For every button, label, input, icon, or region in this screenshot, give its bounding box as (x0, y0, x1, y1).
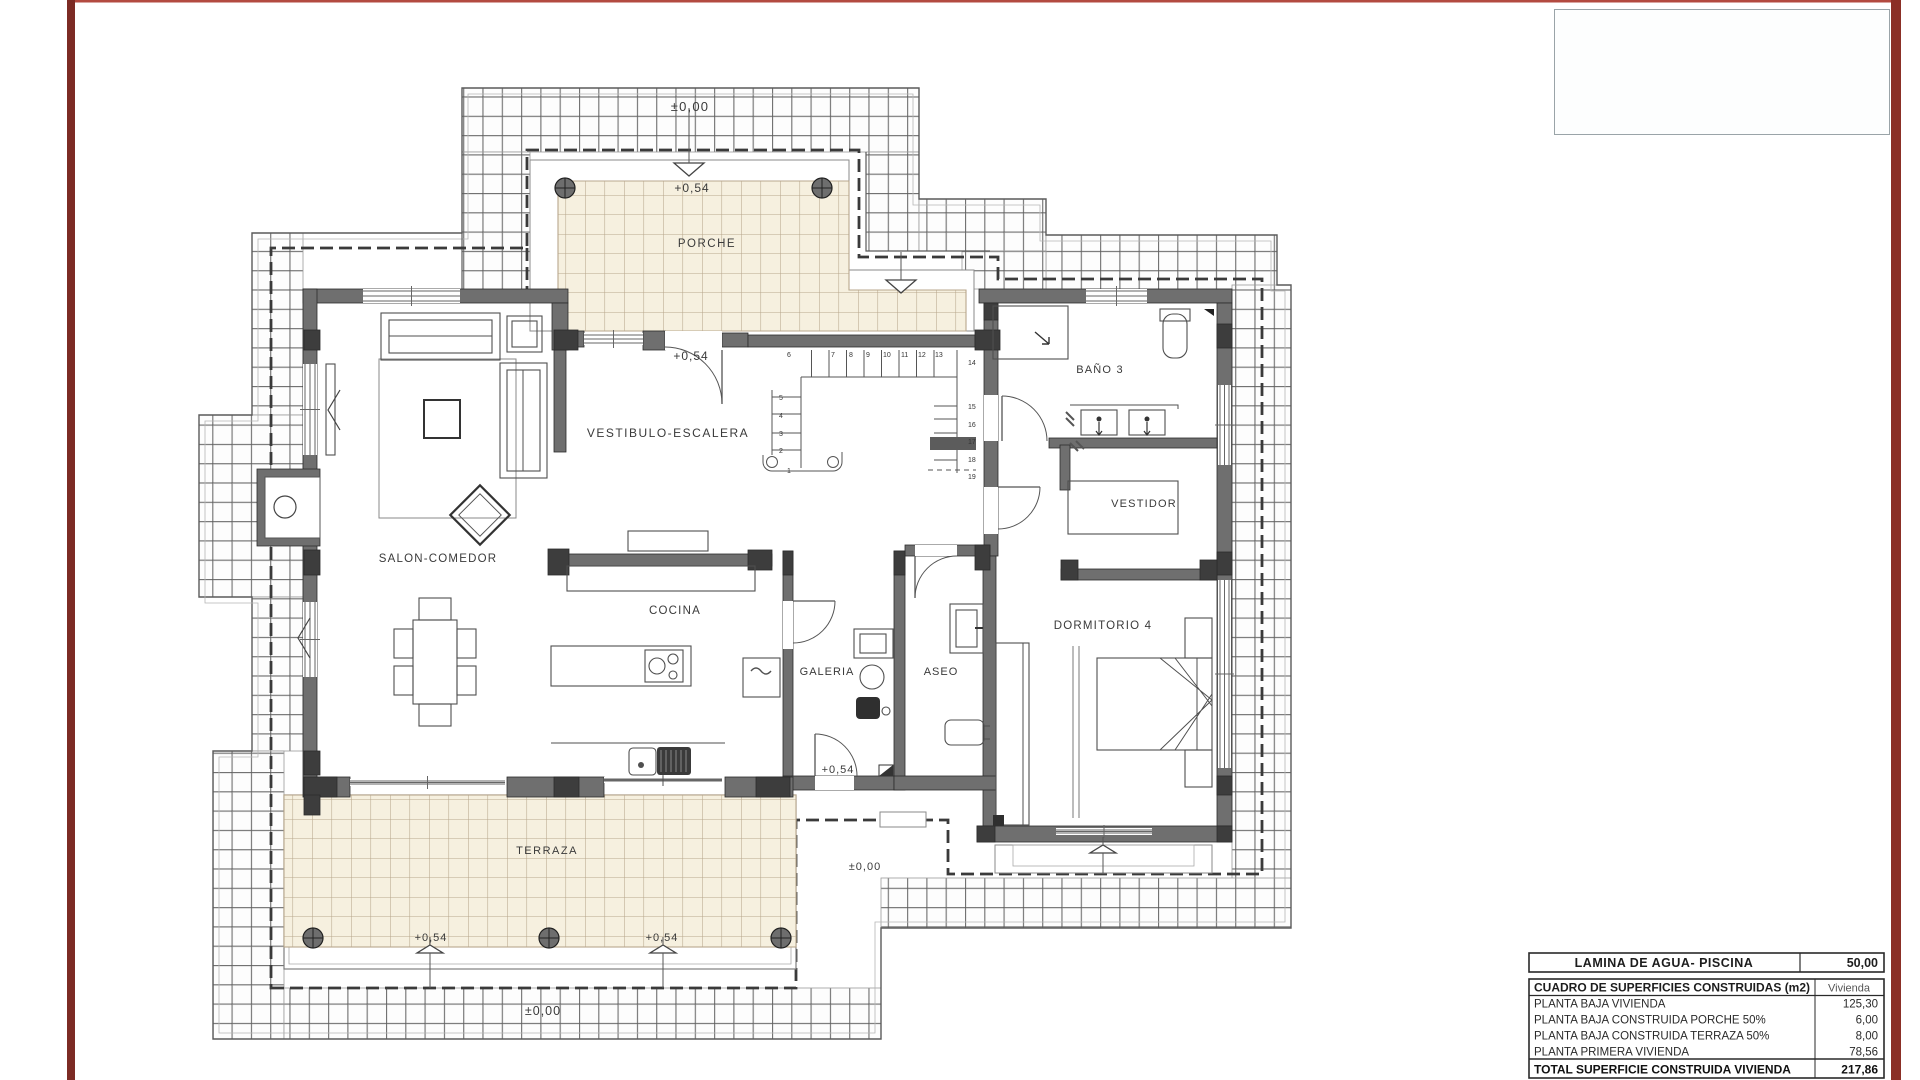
svg-text:3: 3 (779, 431, 783, 438)
svg-text:1: 1 (787, 468, 791, 475)
svg-text:10: 10 (883, 352, 891, 359)
svg-text:PLANTA BAJA CONSTRUIDA TERRAZA: PLANTA BAJA CONSTRUIDA TERRAZA 50% (1534, 1031, 1769, 1043)
svg-text:9: 9 (866, 352, 870, 359)
svg-text:125,30: 125,30 (1843, 999, 1878, 1011)
svg-text:DORMITORIO 4: DORMITORIO 4 (1054, 620, 1153, 632)
svg-text:LAMINA DE AGUA- PISCINA: LAMINA DE AGUA- PISCINA (1575, 956, 1754, 970)
svg-text:VESTIBULO-ESCALERA: VESTIBULO-ESCALERA (587, 426, 749, 440)
svg-text:6,00: 6,00 (1856, 1015, 1878, 1027)
svg-text:PLANTA PRIMERA VIVIENDA: PLANTA PRIMERA VIVIENDA (1534, 1047, 1689, 1059)
svg-text:11: 11 (901, 352, 908, 359)
svg-text:TOTAL SUPERFICIE CONSTRUIDA VI: TOTAL SUPERFICIE CONSTRUIDA VIVIENDA (1534, 1063, 1791, 1077)
svg-text:12: 12 (918, 352, 926, 359)
svg-text:50,00: 50,00 (1847, 956, 1878, 970)
svg-text:2: 2 (779, 448, 783, 455)
svg-text:13: 13 (935, 352, 943, 359)
svg-text:±0,00: ±0,00 (525, 1004, 561, 1018)
svg-text:7: 7 (831, 352, 835, 359)
svg-text:19: 19 (968, 474, 976, 481)
svg-text:PLANTA BAJA VIVIENDA: PLANTA BAJA VIVIENDA (1534, 999, 1666, 1011)
svg-text:15: 15 (968, 404, 976, 411)
svg-text:Vivienda: Vivienda (1828, 983, 1871, 995)
svg-text:4: 4 (779, 413, 783, 420)
svg-text:17: 17 (968, 439, 976, 446)
svg-text:SALON-COMEDOR: SALON-COMEDOR (379, 553, 497, 565)
svg-text:CUADRO DE SUPERFICIES CONSTRUI: CUADRO DE SUPERFICIES CONSTRUIDAS (m2) (1534, 981, 1810, 995)
svg-text:COCINA: COCINA (649, 605, 701, 617)
svg-text:GALERIA: GALERIA (800, 666, 855, 678)
svg-text:8,00: 8,00 (1856, 1031, 1878, 1043)
svg-text:+0,54: +0,54 (646, 932, 679, 944)
svg-text:+0,54: +0,54 (822, 764, 855, 776)
svg-text:±0,00: ±0,00 (671, 99, 709, 114)
svg-text:PLANTA BAJA CONSTRUIDA PORCHE: PLANTA BAJA CONSTRUIDA PORCHE 50% (1534, 1015, 1766, 1027)
svg-text:±0,00: ±0,00 (849, 861, 881, 873)
svg-text:TERRAZA: TERRAZA (516, 845, 578, 857)
svg-text:5: 5 (779, 395, 783, 402)
svg-text:PORCHE: PORCHE (678, 238, 736, 250)
svg-text:16: 16 (968, 422, 976, 429)
svg-text:18: 18 (968, 457, 976, 464)
svg-text:78,56: 78,56 (1849, 1047, 1878, 1059)
svg-text:6: 6 (787, 352, 791, 359)
svg-text:BAÑO 3: BAÑO 3 (1076, 363, 1124, 376)
svg-text:VESTIDOR: VESTIDOR (1111, 498, 1177, 510)
svg-text:+0,54: +0,54 (415, 932, 448, 944)
svg-text:+0,54: +0,54 (674, 181, 709, 195)
svg-text:217,86: 217,86 (1841, 1063, 1878, 1077)
svg-text:14: 14 (968, 360, 976, 367)
svg-text:ASEO: ASEO (924, 666, 959, 678)
svg-text:+0,54: +0,54 (673, 349, 708, 363)
svg-text:8: 8 (849, 352, 853, 359)
